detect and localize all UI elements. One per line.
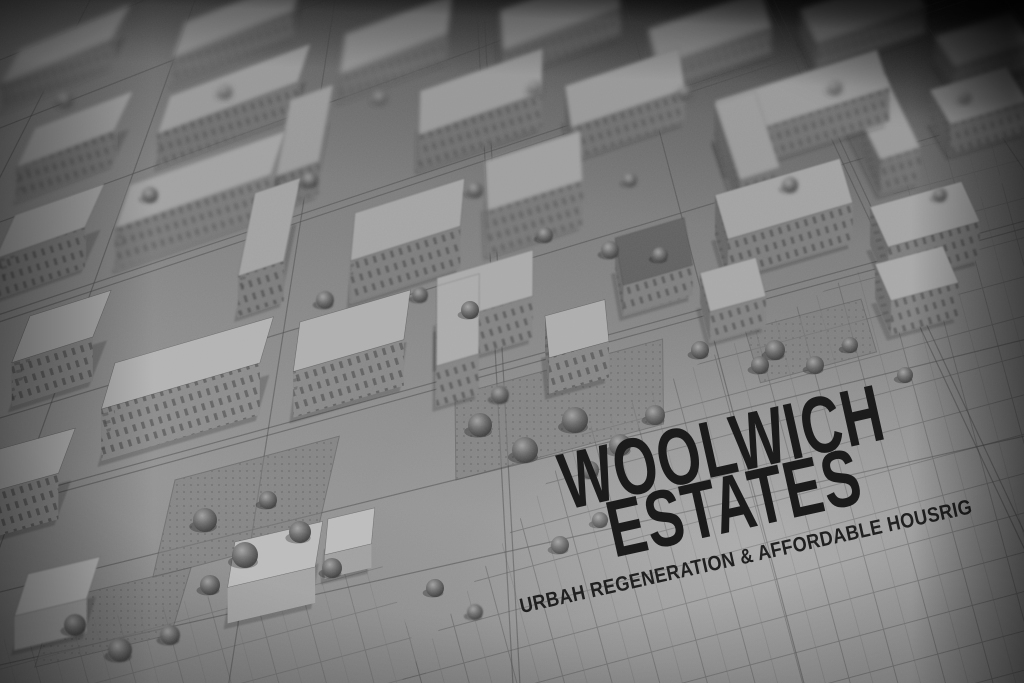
masterplan-model-scene — [0, 0, 1024, 683]
model-photograph: WOOLWICH ESTATES URBAH REGENERATION & AF… — [0, 0, 1024, 683]
